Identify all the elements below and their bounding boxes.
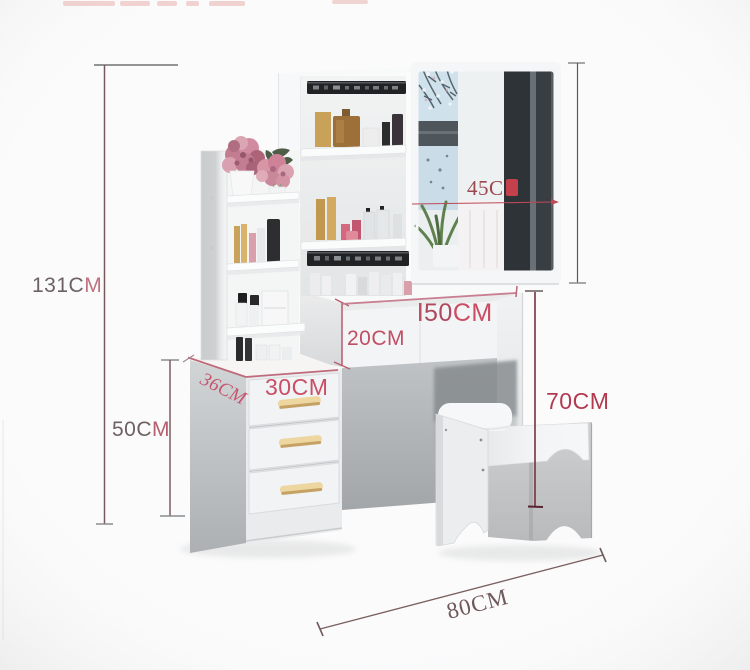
svg-text:50CM: 50CM [424,299,493,327]
svg-text:20CM: 20CM [347,327,405,350]
svg-text:45C: 45C [467,176,504,200]
svg-text:70CM: 70CM [546,388,609,414]
svg-text:131CM: 131CM [32,274,102,297]
svg-text:30CM: 30CM [265,374,328,400]
svg-text:50CM: 50CM [112,418,170,441]
